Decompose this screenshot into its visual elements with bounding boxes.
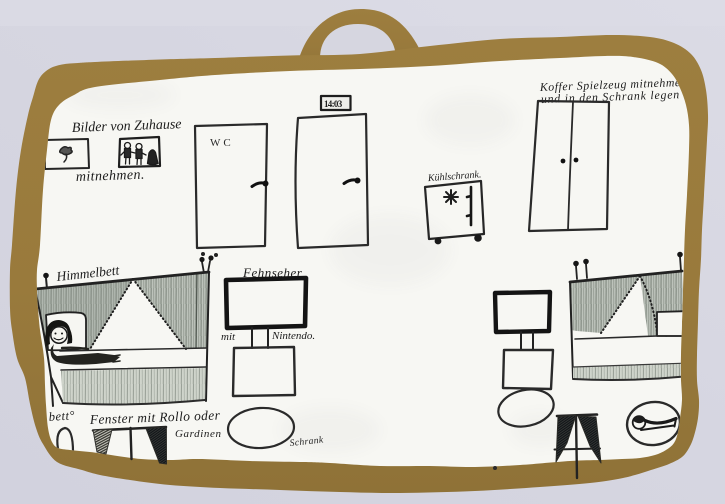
svg-text:mit: mit (221, 331, 236, 343)
svg-text:bett°: bett° (48, 408, 75, 424)
svg-text:mitnehmen.: mitnehmen. (76, 168, 145, 185)
svg-text:Nintendo.: Nintendo. (271, 330, 315, 342)
svg-text:WC: WC (210, 137, 234, 149)
svg-text:14:03: 14:03 (324, 99, 343, 109)
svg-text:Gardinen: Gardinen (175, 428, 222, 440)
